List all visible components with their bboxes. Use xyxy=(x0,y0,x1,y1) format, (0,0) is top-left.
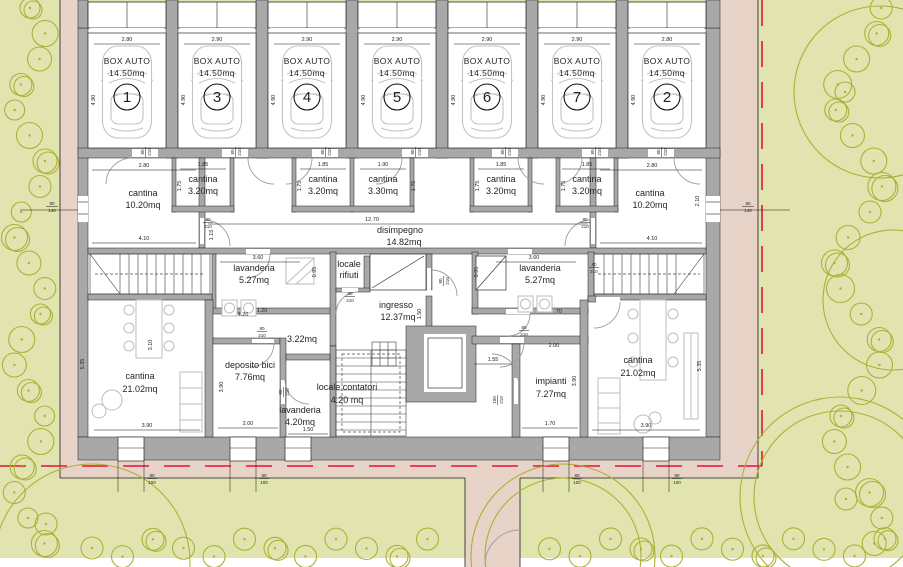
garage-area: 14.50mq xyxy=(559,68,595,78)
svg-text:rifiuti: rifiuti xyxy=(339,270,358,280)
svg-text:1.75: 1.75 xyxy=(411,181,417,192)
svg-text:80: 80 xyxy=(347,291,353,296)
room-label-cantina-s3: cantina xyxy=(368,174,397,184)
garage-width-dim: 2.90 xyxy=(392,37,403,43)
svg-text:100: 100 xyxy=(673,480,681,485)
svg-text:210: 210 xyxy=(581,224,589,229)
svg-text:1.55: 1.55 xyxy=(488,357,499,363)
svg-text:2.10: 2.10 xyxy=(695,196,701,207)
svg-text:21.02mq: 21.02mq xyxy=(620,368,655,378)
garage-depth-dim: 4.90 xyxy=(361,95,367,106)
svg-text:.70: .70 xyxy=(554,309,562,315)
garage-box-auto-1: 2.80 4.90 BOX AUTO 14.50mq 1 xyxy=(88,2,166,148)
garage-label: BOX AUTO xyxy=(374,56,421,66)
svg-text:1.50: 1.50 xyxy=(303,427,314,433)
svg-text:1.90: 1.90 xyxy=(378,162,389,168)
svg-text:140: 140 xyxy=(48,208,56,213)
svg-text:210: 210 xyxy=(590,269,598,274)
garage-depth-dim: 4.90 xyxy=(451,95,457,106)
svg-text:210: 210 xyxy=(147,148,152,156)
room-label-cantina-s2: cantina xyxy=(308,174,337,184)
garage-label: BOX AUTO xyxy=(464,56,511,66)
garage-number: 4 xyxy=(303,89,311,106)
garage-number: 6 xyxy=(483,89,491,106)
svg-text:210: 210 xyxy=(507,148,512,156)
svg-text:4.10: 4.10 xyxy=(139,236,150,242)
svg-text:4.20 mq: 4.20 mq xyxy=(331,395,364,405)
svg-text:1.85: 1.85 xyxy=(496,162,507,168)
room-label-lavanderia-w: lavanderia xyxy=(233,263,275,273)
svg-text:3.60: 3.60 xyxy=(529,255,540,261)
room-label-deposito-bici: deposito bici xyxy=(225,360,275,370)
svg-text:80: 80 xyxy=(591,262,597,267)
svg-text:80: 80 xyxy=(49,201,55,206)
garage-area: 14.50mq xyxy=(109,68,145,78)
room-label-ingresso: ingresso xyxy=(379,300,413,310)
garage-number: 2 xyxy=(663,89,671,106)
svg-text:1.20: 1.20 xyxy=(238,312,249,318)
svg-text:80: 80 xyxy=(656,149,661,155)
room-label-impianti: impianti xyxy=(535,376,566,386)
svg-text:80: 80 xyxy=(674,473,680,478)
svg-text:100: 100 xyxy=(492,396,497,404)
svg-text:80: 80 xyxy=(574,473,580,478)
svg-text:1.75: 1.75 xyxy=(561,181,567,192)
svg-text:80: 80 xyxy=(230,149,235,155)
room-label-disimpegno: disimpegno xyxy=(377,225,423,235)
garage-number: 1 xyxy=(123,89,131,106)
svg-text:3.30mq: 3.30mq xyxy=(368,186,398,196)
svg-text:1.75: 1.75 xyxy=(177,181,183,192)
svg-text:210: 210 xyxy=(445,277,450,285)
svg-text:7.76mq: 7.76mq xyxy=(235,372,265,382)
garage-width-dim: 2.90 xyxy=(572,37,583,43)
garage-box-auto-2: 2.80 4.90 BOX AUTO 14.50mq 2 xyxy=(628,2,706,148)
room-label-cantina-s5: cantina xyxy=(572,174,601,184)
svg-text:14.82mq: 14.82mq xyxy=(386,237,421,247)
room-label-cantina-ne: cantina xyxy=(635,188,664,198)
svg-text:3.90: 3.90 xyxy=(572,376,578,387)
svg-text:210: 210 xyxy=(499,396,504,404)
svg-text:21.02mq: 21.02mq xyxy=(122,384,157,394)
svg-text:4.10: 4.10 xyxy=(647,236,658,242)
garage-area: 14.50mq xyxy=(199,68,235,78)
svg-text:0.95: 0.95 xyxy=(312,267,318,278)
svg-text:4.20mq: 4.20mq xyxy=(285,417,315,427)
svg-text:80: 80 xyxy=(500,149,505,155)
svg-text:80: 80 xyxy=(745,201,751,206)
svg-text:80: 80 xyxy=(410,149,415,155)
svg-text:3.20mq: 3.20mq xyxy=(308,186,338,196)
svg-text:80: 80 xyxy=(438,278,443,284)
svg-text:10.20mq: 10.20mq xyxy=(125,200,160,210)
svg-text:80: 80 xyxy=(140,149,145,155)
svg-text:10.20mq: 10.20mq xyxy=(632,200,667,210)
garage-depth-dim: 4.90 xyxy=(271,95,277,106)
room-label-cantina-nw: cantina xyxy=(128,188,157,198)
svg-text:210: 210 xyxy=(327,148,332,156)
svg-text:80: 80 xyxy=(582,217,588,222)
garage-depth-dim: 4.90 xyxy=(91,95,97,106)
room-label-lavanderia-sw: lavanderia xyxy=(279,405,321,415)
svg-text:5.35: 5.35 xyxy=(697,361,703,372)
room-label-322: 3.22mq xyxy=(287,334,317,344)
svg-text:3.90: 3.90 xyxy=(219,382,225,393)
garage-box-auto-5: 2.90 4.90 BOX AUTO 14.50mq 5 xyxy=(358,2,436,148)
svg-text:210: 210 xyxy=(597,148,602,156)
svg-text:12.37mq: 12.37mq xyxy=(380,312,415,322)
svg-text:12.70: 12.70 xyxy=(365,217,379,223)
garage-area: 14.50mq xyxy=(469,68,505,78)
svg-text:210: 210 xyxy=(346,298,354,303)
garage-depth-dim: 4.90 xyxy=(181,95,187,106)
room-label-locale-rifiuti: locale xyxy=(337,259,361,269)
garage-box-auto-6: 2.90 4.90 BOX AUTO 14.50mq 6 xyxy=(448,2,526,148)
svg-text:1.85: 1.85 xyxy=(582,162,593,168)
svg-text:100: 100 xyxy=(573,480,581,485)
garage-area: 14.50mq xyxy=(289,68,325,78)
elevator xyxy=(424,334,466,392)
svg-text:210: 210 xyxy=(417,148,422,156)
garage-width-dim: 2.90 xyxy=(482,37,493,43)
svg-text:1.75: 1.75 xyxy=(297,181,303,192)
svg-text:2.00: 2.00 xyxy=(549,343,560,349)
svg-text:3.20mq: 3.20mq xyxy=(486,186,516,196)
svg-text:7.27mq: 7.27mq xyxy=(536,389,566,399)
svg-text:5.27mq: 5.27mq xyxy=(239,275,269,285)
svg-text:80: 80 xyxy=(259,326,265,331)
garage-number: 3 xyxy=(213,89,221,106)
sofa-west xyxy=(180,372,202,432)
svg-text:0.95: 0.95 xyxy=(474,267,480,278)
shower-box xyxy=(476,256,506,290)
svg-text:3.10: 3.10 xyxy=(148,340,154,351)
room-label-cantina-s4: cantina xyxy=(486,174,515,184)
room-label-lavanderia-e: lavanderia xyxy=(519,263,561,273)
svg-text:210: 210 xyxy=(663,148,668,156)
garage-area: 14.50mq xyxy=(379,68,415,78)
floor-plan-drawing: 2.80 4.90 BOX AUTO 14.50mq 1 2.90 4.90 B… xyxy=(0,0,903,567)
svg-text:1.50: 1.50 xyxy=(417,309,423,320)
svg-text:80: 80 xyxy=(278,389,283,395)
garage-width-dim: 2.90 xyxy=(212,37,223,43)
site-plan-canvas: 2.80 4.90 BOX AUTO 14.50mq 1 2.90 4.90 B… xyxy=(0,0,903,567)
svg-text:1.70: 1.70 xyxy=(545,421,556,427)
building: 2.80 4.90 BOX AUTO 14.50mq 1 2.90 4.90 B… xyxy=(20,0,790,492)
garage-box-auto-7: 2.90 4.90 BOX AUTO 14.50mq 7 xyxy=(538,2,616,148)
garage-label: BOX AUTO xyxy=(194,56,241,66)
garage-label: BOX AUTO xyxy=(284,56,331,66)
svg-text:80: 80 xyxy=(521,325,527,330)
garage-depth-dim: 4.90 xyxy=(541,95,547,106)
room-label-cantina-s1: cantina xyxy=(188,174,217,184)
svg-text:210: 210 xyxy=(237,148,242,156)
svg-text:2.80: 2.80 xyxy=(139,163,150,169)
garage-label: BOX AUTO xyxy=(104,56,151,66)
room-label-locale-contatori: locale contatori xyxy=(317,382,378,392)
svg-text:80: 80 xyxy=(590,149,595,155)
garage-box-auto-3: 2.90 4.90 BOX AUTO 14.50mq 3 xyxy=(178,2,256,148)
svg-text:3.90: 3.90 xyxy=(641,423,652,429)
garage-label: BOX AUTO xyxy=(554,56,601,66)
svg-text:210: 210 xyxy=(258,333,266,338)
svg-text:80: 80 xyxy=(149,473,155,478)
svg-text:1.75: 1.75 xyxy=(475,181,481,192)
svg-text:210: 210 xyxy=(520,332,528,337)
svg-text:80: 80 xyxy=(205,217,211,222)
svg-text:3.20mq: 3.20mq xyxy=(188,186,218,196)
svg-text:1.15: 1.15 xyxy=(209,230,215,241)
svg-text:3.90: 3.90 xyxy=(142,423,153,429)
garage-width-dim: 2.80 xyxy=(662,37,673,43)
sofa-east xyxy=(598,378,620,434)
svg-text:1.85: 1.85 xyxy=(198,162,209,168)
svg-text:210: 210 xyxy=(285,388,290,396)
svg-text:5.27mq: 5.27mq xyxy=(525,275,555,285)
room-label-cantina-sw: cantina xyxy=(125,371,154,381)
garage-label: BOX AUTO xyxy=(644,56,691,66)
svg-text:140: 140 xyxy=(744,208,752,213)
svg-text:5.35: 5.35 xyxy=(80,359,86,370)
svg-text:80: 80 xyxy=(320,149,325,155)
garage-number: 5 xyxy=(393,89,401,106)
garage-depth-dim: 4.90 xyxy=(631,95,637,106)
svg-text:210: 210 xyxy=(204,224,212,229)
svg-text:2.80: 2.80 xyxy=(647,163,658,169)
svg-text:1.85: 1.85 xyxy=(318,162,329,168)
garage-number: 7 xyxy=(573,89,581,106)
svg-text:3.20mq: 3.20mq xyxy=(572,186,602,196)
ramp xyxy=(370,254,426,290)
garage-area: 14.50mq xyxy=(649,68,685,78)
garage-box-auto-4: 2.90 4.90 BOX AUTO 14.50mq 4 xyxy=(268,2,346,148)
svg-text:80: 80 xyxy=(261,473,267,478)
svg-text:100: 100 xyxy=(260,480,268,485)
garage-width-dim: 2.80 xyxy=(122,37,133,43)
room-label-cantina-se: cantina xyxy=(623,355,652,365)
garage-width-dim: 2.90 xyxy=(302,37,313,43)
svg-text:100: 100 xyxy=(148,480,156,485)
svg-text:1.20: 1.20 xyxy=(257,308,268,314)
svg-text:3.60: 3.60 xyxy=(253,255,264,261)
svg-text:2.00: 2.00 xyxy=(243,421,254,427)
